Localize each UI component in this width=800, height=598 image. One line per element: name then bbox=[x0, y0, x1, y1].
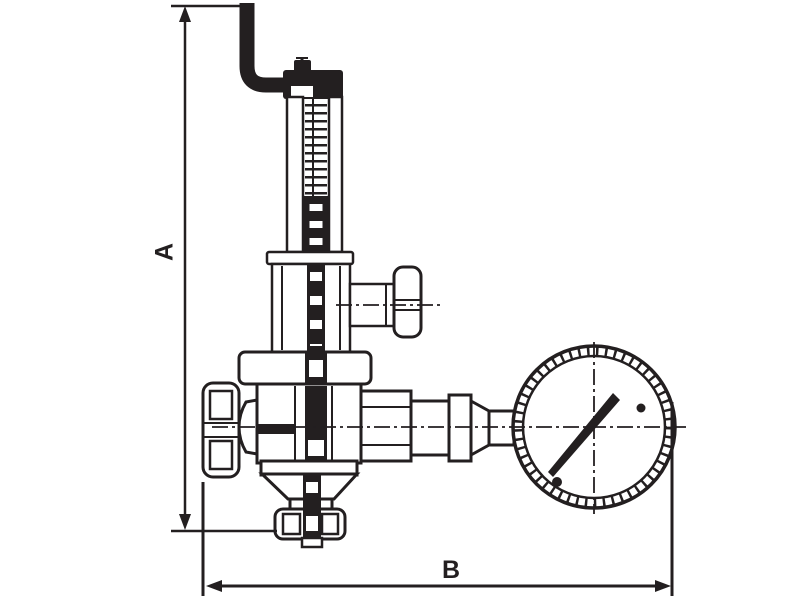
pressure-gauge bbox=[513, 342, 675, 514]
gauge-connection bbox=[361, 391, 514, 461]
dimension-b-label: B bbox=[442, 556, 460, 584]
side-adjustment-knob bbox=[350, 267, 421, 337]
dimension-a-label: A bbox=[151, 243, 179, 261]
bonnet-tube bbox=[287, 97, 342, 252]
bonnet-flange bbox=[267, 252, 353, 264]
arrow-down-icon bbox=[179, 514, 191, 530]
drawing-canvas: A B bbox=[0, 0, 800, 598]
bottom-outlet bbox=[262, 474, 357, 547]
valve-body bbox=[248, 384, 361, 475]
spring-chamber bbox=[272, 264, 350, 352]
upper-body-flange bbox=[239, 352, 371, 384]
gauge-dial-mark bbox=[637, 404, 646, 413]
arrow-up-icon bbox=[179, 6, 191, 22]
inlet-knob bbox=[203, 383, 257, 477]
valve-technical-drawing: A B bbox=[0, 0, 800, 598]
top-cap bbox=[283, 57, 343, 99]
arrow-left-icon bbox=[206, 580, 222, 592]
arrow-right-icon bbox=[655, 580, 671, 592]
